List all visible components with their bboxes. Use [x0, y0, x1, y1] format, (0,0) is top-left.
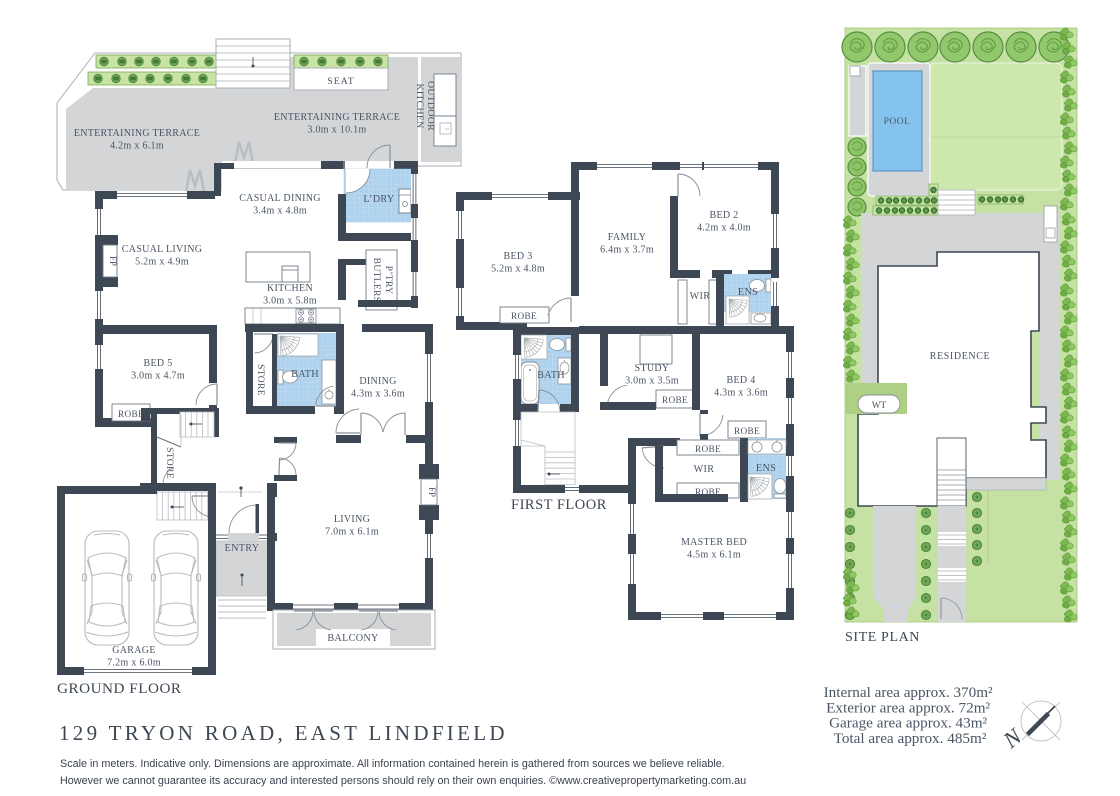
svg-text:KITCHEN3.0m x 5.8m: KITCHEN3.0m x 5.8m [263, 283, 317, 307]
svg-text:ENS: ENS [756, 463, 776, 474]
svg-text:ENTRY: ENTRY [225, 543, 260, 554]
svg-text:P’TRY: P’TRY [383, 266, 394, 295]
svg-text:POOL: POOL [884, 117, 911, 127]
svg-text:Scale in meters. Indicative on: Scale in meters. Indicative only. Dimens… [60, 758, 725, 770]
svg-text:BATH: BATH [537, 370, 565, 381]
svg-text:WIR: WIR [694, 464, 715, 475]
svg-text:FAMILY6.4m x 3.7m: FAMILY6.4m x 3.7m [600, 232, 654, 256]
svg-text:ROBE: ROBE [662, 396, 688, 406]
svg-text:WIR: WIR [690, 291, 711, 302]
svg-text:GARAGE7.2m x 6.0m: GARAGE7.2m x 6.0m [107, 645, 161, 669]
svg-text:BATH: BATH [291, 369, 319, 380]
svg-text:SITE PLAN: SITE PLAN [845, 630, 920, 645]
svg-text:ROBE: ROBE [118, 410, 144, 420]
svg-text:ROBE: ROBE [511, 312, 537, 322]
svg-text:GROUND FLOOR: GROUND FLOOR [57, 680, 182, 697]
svg-text:MASTER BED4.5m x 6.1m: MASTER BED4.5m x 6.1m [681, 537, 747, 561]
svg-text:L’DRY: L’DRY [363, 194, 394, 205]
svg-text:ROBE: ROBE [695, 445, 721, 455]
svg-text:FIRST FLOOR: FIRST FLOOR [511, 497, 607, 513]
svg-text:SEAT: SEAT [327, 76, 354, 87]
svg-text:129 TRYON ROAD, EAST LINDFIELD: 129 TRYON ROAD, EAST LINDFIELD [59, 721, 508, 745]
svg-text:RESIDENCE: RESIDENCE [930, 351, 990, 362]
svg-text:FP: FP [427, 487, 437, 497]
svg-text:ENS: ENS [738, 287, 758, 298]
svg-text:BALCONY: BALCONY [327, 633, 379, 644]
svg-text:WT: WT [872, 401, 887, 411]
svg-text:However we cannot guarantee it: However we cannot guarantee its accuracy… [60, 775, 746, 787]
svg-text:BUTLERS: BUTLERS [371, 258, 382, 303]
svg-text:FP: FP [108, 256, 118, 266]
svg-text:Internal area approx. 370m² Ex: Internal area approx. 370m² Exterior are… [824, 684, 997, 747]
svg-text:STORE: STORE [255, 364, 266, 396]
svg-text:OUTDOOR: OUTDOOR [425, 81, 436, 131]
svg-text:KITCHEN: KITCHEN [414, 83, 425, 128]
svg-text:ROBE: ROBE [734, 427, 760, 437]
